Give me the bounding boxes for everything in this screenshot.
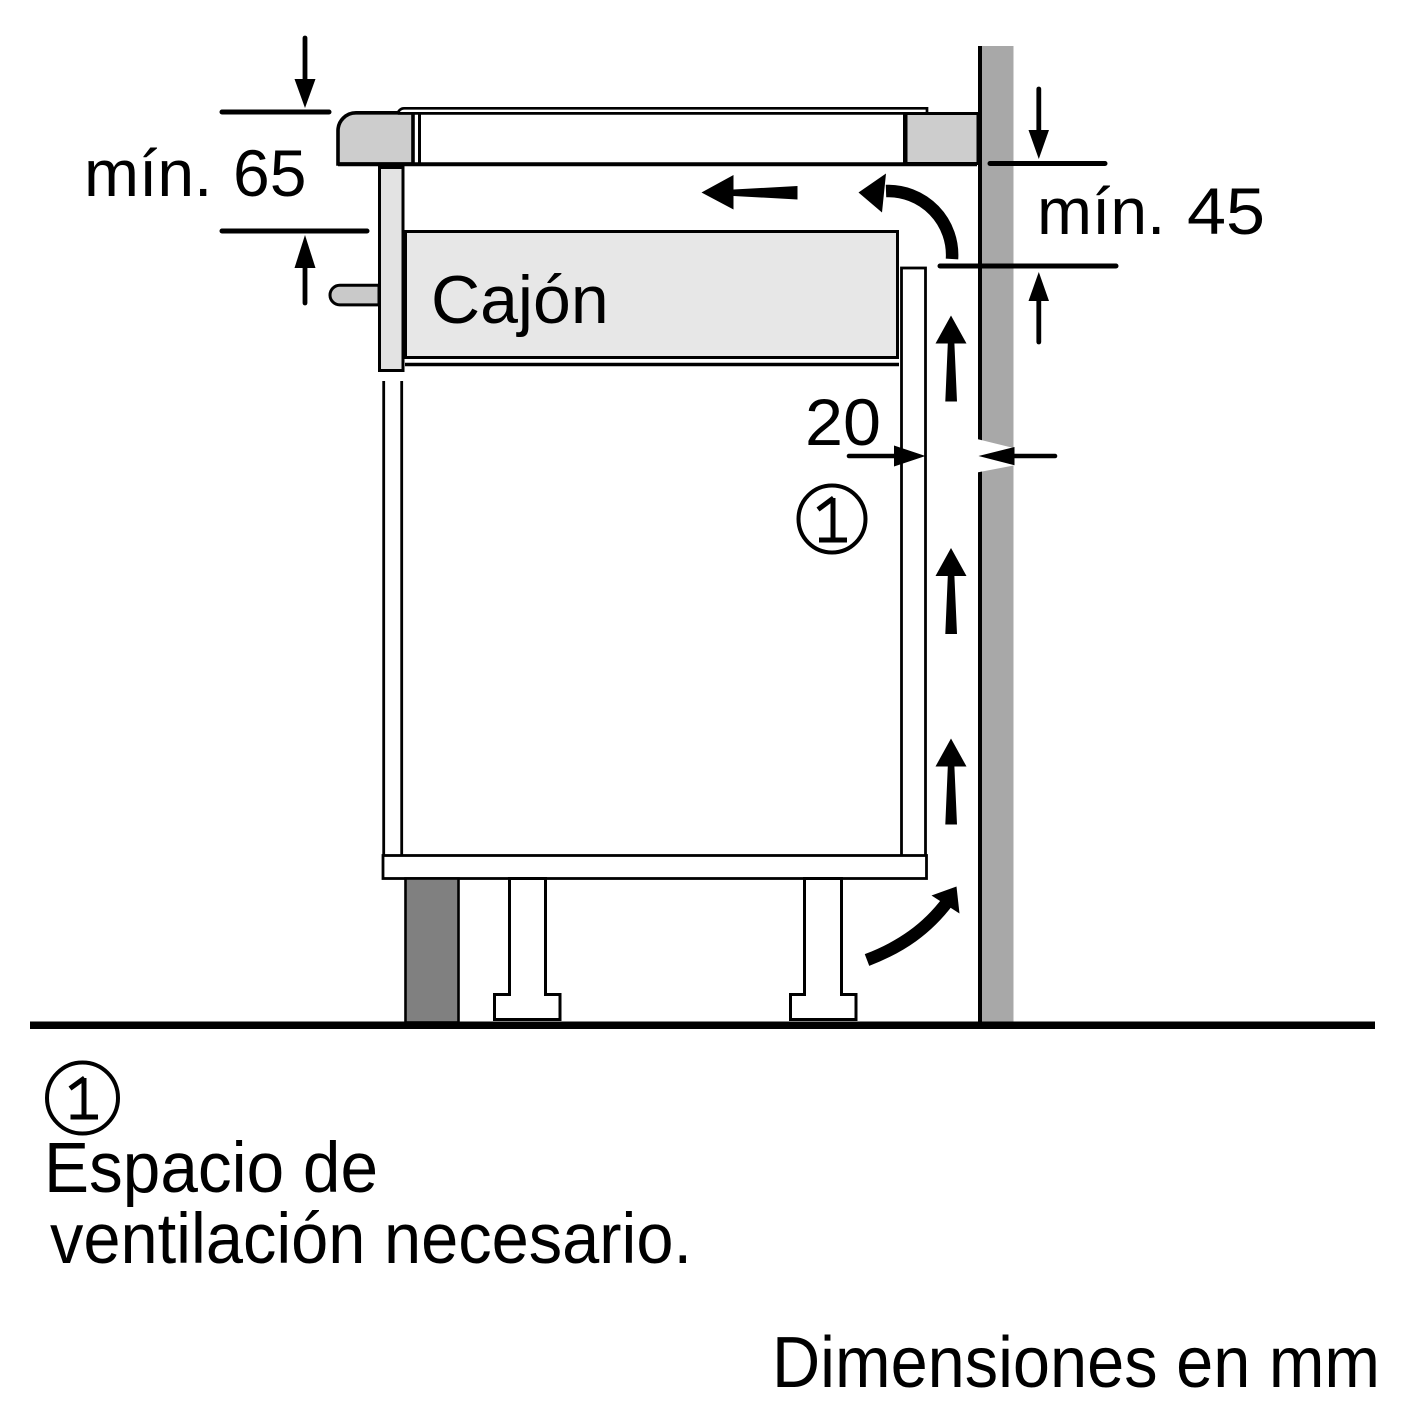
svg-text:mín.: mín.	[84, 136, 212, 210]
svg-text:65: 65	[233, 136, 306, 210]
svg-text:45: 45	[1187, 174, 1265, 248]
svg-text:ventilación necesario.: ventilación necesario.	[50, 1200, 692, 1279]
svg-text:Espacio de: Espacio de	[44, 1129, 378, 1208]
svg-text:mín.: mín.	[1037, 174, 1165, 248]
svg-text:Dimensiones en mm: Dimensiones en mm	[772, 1323, 1380, 1403]
svg-text:20: 20	[805, 385, 881, 459]
svg-text:Cajón: Cajón	[431, 262, 609, 338]
